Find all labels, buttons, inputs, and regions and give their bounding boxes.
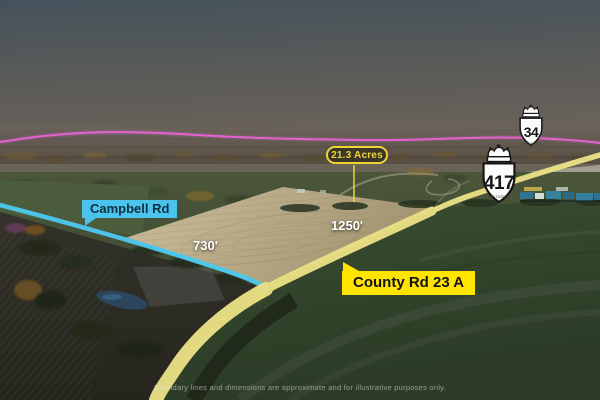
label-pointer-tail [85, 218, 96, 226]
label-pointer-tail [343, 262, 359, 271]
aerial-listing-image: 21.3 Acres Campbell Rd County Rd 23 A 73… [0, 0, 600, 400]
disclaimer-text: Boundary lines and dimensions are approx… [0, 383, 600, 392]
shield-number: 417 [472, 173, 526, 195]
shield-subtext: ONTARIO [472, 194, 526, 199]
dimension-730: 730' [193, 238, 218, 253]
road-label-county-text: County Rd 23 A [353, 274, 464, 291]
road-label-campbell: Campbell Rd [82, 200, 177, 218]
road-label-county: County Rd 23 A [342, 271, 475, 295]
acreage-label: 21.3 Acres [326, 146, 388, 164]
highway-shield-417: 417 ONTARIO [472, 142, 526, 210]
dimension-1250: 1250' [331, 218, 363, 233]
road-label-campbell-text: Campbell Rd [90, 201, 169, 216]
shield-number: 34 [512, 124, 550, 140]
